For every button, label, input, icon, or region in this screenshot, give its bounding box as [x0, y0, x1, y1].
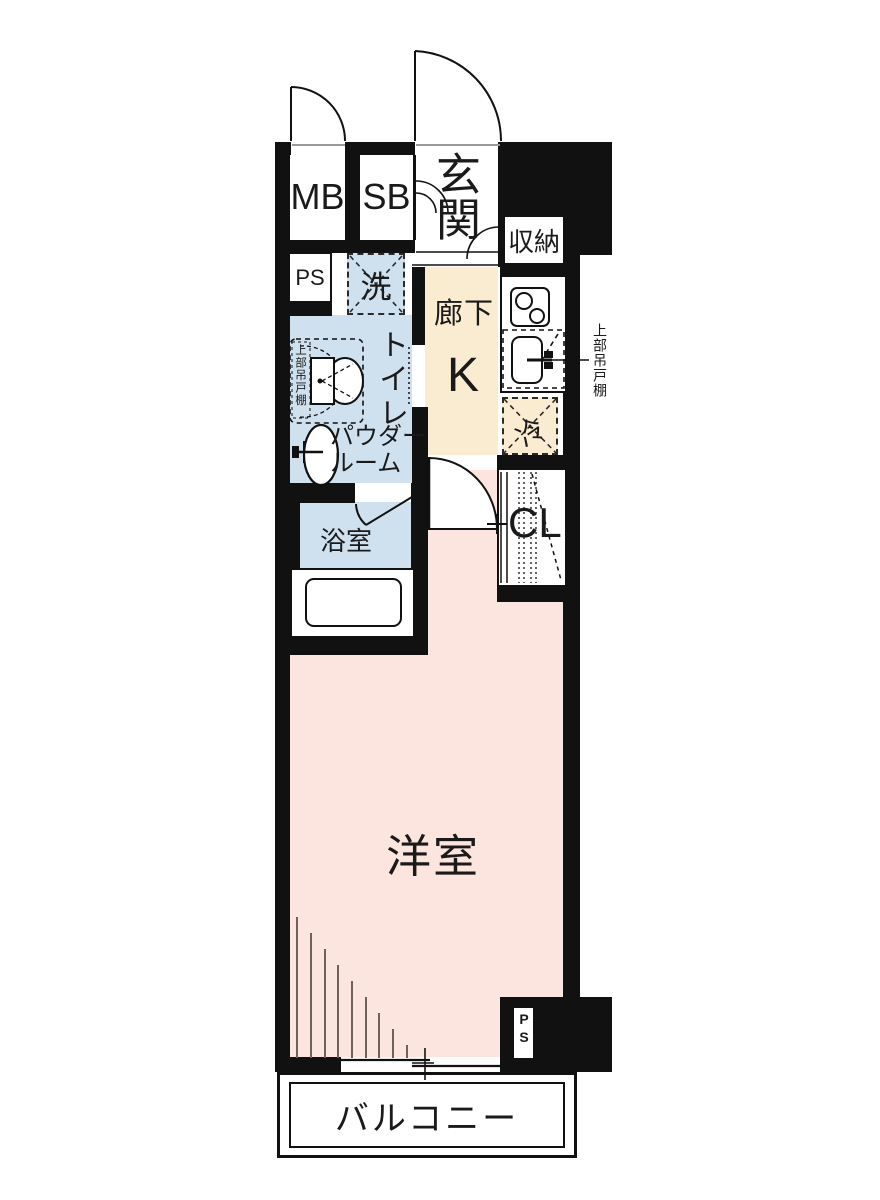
wall-right-upper — [565, 215, 612, 255]
entrance-label: 玄関 — [430, 151, 478, 241]
wall-block-top-right — [498, 142, 612, 215]
storage-label: 収納 — [503, 217, 565, 263]
powder-room-label: パウダールーム — [330, 423, 430, 477]
meter-box-label: MB — [290, 155, 345, 238]
balcony-label: バルコニー — [335, 1091, 519, 1140]
pipe-space-top-label: PS — [288, 254, 332, 301]
mb-door-arc — [291, 87, 345, 141]
window-opening — [341, 1057, 500, 1072]
wall-closet-top — [497, 455, 565, 470]
upper-cabinet-left-label: 上部吊戸棚 — [292, 344, 308, 407]
pipe-space-bottom-label: PS — [516, 1011, 532, 1047]
wall-powder-hall-upper — [412, 267, 425, 345]
wall-closet-bottom — [497, 585, 565, 602]
bathroom-label: 浴室 — [320, 521, 372, 558]
bathtub-inner — [305, 578, 402, 627]
toilet-label: トイレ — [368, 329, 412, 431]
western-room-floor-upper — [428, 470, 497, 655]
balcony-inner: バルコニー — [289, 1082, 565, 1148]
kitchen-label: K — [447, 348, 479, 403]
wall-bottom-left — [275, 1057, 341, 1072]
floor-plan: バルコニー — [0, 0, 880, 1200]
laundry-label: 洗 — [347, 255, 405, 313]
western-room-floor-lower — [290, 997, 500, 1057]
western-room-label: 洋室 — [386, 820, 480, 885]
shoe-box-label: SB — [360, 155, 413, 238]
wall-under-ps — [288, 303, 332, 316]
wall-under-bathtub — [275, 638, 428, 655]
closet-label: CL — [508, 499, 562, 547]
upper-cabinet-right-label: 上部吊戸棚 — [590, 323, 610, 398]
kitchen-counter — [500, 275, 567, 393]
entrance-door-arc — [415, 51, 501, 141]
wall-mb-sb-divider — [345, 153, 360, 240]
wall-top-corner — [275, 142, 291, 155]
hallway-label: 廊下 — [434, 290, 494, 332]
western-room-floor-right — [497, 602, 563, 655]
